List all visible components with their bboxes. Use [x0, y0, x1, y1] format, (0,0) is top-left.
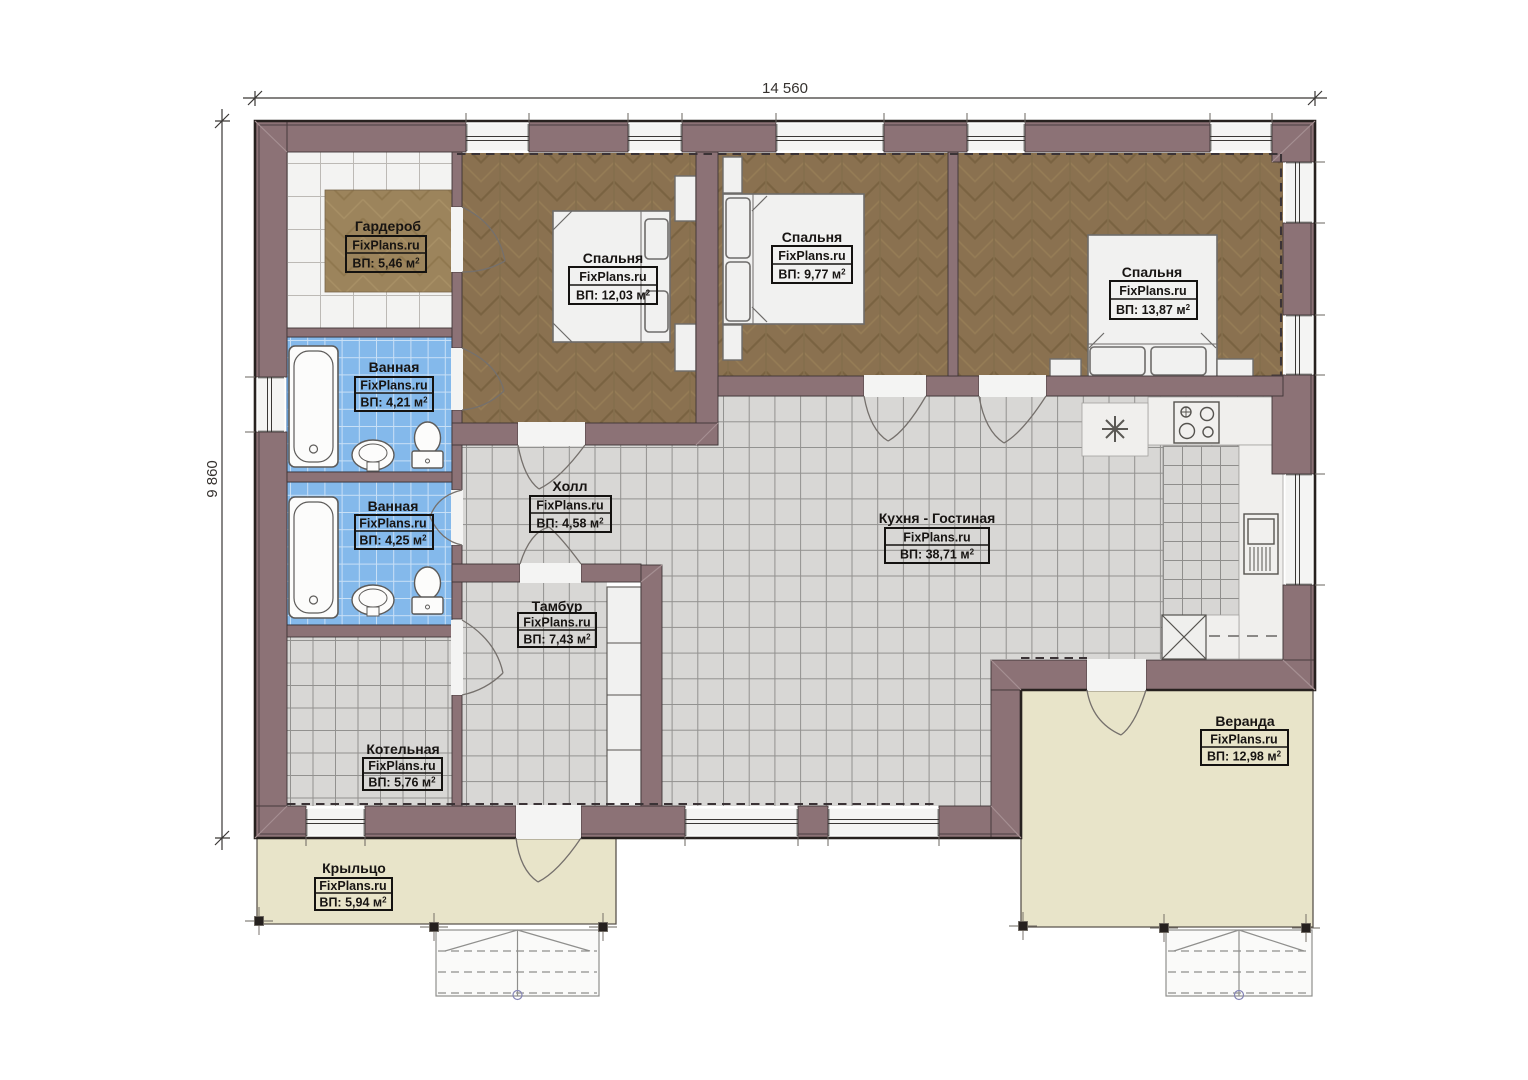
svg-text:FixPlans.ru: FixPlans.ru: [319, 879, 386, 893]
svg-text:Котельная: Котельная: [366, 741, 439, 757]
svg-text:FixPlans.ru: FixPlans.ru: [352, 239, 419, 253]
svg-text:Тамбур: Тамбур: [532, 598, 583, 614]
svg-text:Ванная: Ванная: [368, 498, 419, 514]
svg-text:9 860: 9 860: [204, 460, 221, 498]
svg-text:14 560: 14 560: [762, 80, 808, 97]
svg-text:FixPlans.ru: FixPlans.ru: [368, 759, 435, 773]
svg-text:Холл: Холл: [552, 478, 587, 494]
svg-text:ВП: 5,46 м2: ВП: 5,46 м2: [352, 257, 420, 271]
svg-text:Спальня: Спальня: [1122, 264, 1182, 280]
svg-text:ВП: 4,25 м2: ВП: 4,25 м2: [359, 534, 427, 548]
svg-text:Кухня - Гостиная: Кухня - Гостиная: [879, 510, 996, 526]
svg-text:ВП: 5,76 м2: ВП: 5,76 м2: [368, 776, 436, 790]
svg-text:ВП: 12,98 м2: ВП: 12,98 м2: [1207, 750, 1282, 764]
svg-text:ВП: 4,21 м2: ВП: 4,21 м2: [360, 396, 428, 410]
svg-text:FixPlans.ru: FixPlans.ru: [1210, 733, 1277, 747]
svg-text:Гардероб: Гардероб: [355, 218, 422, 234]
svg-text:FixPlans.ru: FixPlans.ru: [536, 499, 603, 513]
svg-text:Спальня: Спальня: [583, 250, 643, 266]
svg-text:ВП: 38,71 м2: ВП: 38,71 м2: [900, 548, 975, 562]
svg-text:FixPlans.ru: FixPlans.ru: [360, 379, 427, 393]
svg-text:ВП: 13,87 м2: ВП: 13,87 м2: [1116, 303, 1191, 317]
svg-text:FixPlans.ru: FixPlans.ru: [778, 249, 845, 263]
svg-text:ВП: 4,58 м2: ВП: 4,58 м2: [536, 517, 604, 531]
svg-text:FixPlans.ru: FixPlans.ru: [1119, 284, 1186, 298]
svg-text:Спальня: Спальня: [782, 229, 842, 245]
svg-text:Веранда: Веранда: [1215, 713, 1275, 729]
svg-text:ВП: 5,94 м2: ВП: 5,94 м2: [319, 896, 387, 910]
svg-text:FixPlans.ru: FixPlans.ru: [903, 531, 970, 545]
svg-text:FixPlans.ru: FixPlans.ru: [523, 616, 590, 630]
svg-text:Ванная: Ванная: [369, 359, 420, 375]
svg-text:FixPlans.ru: FixPlans.ru: [359, 517, 426, 531]
svg-text:ВП: 9,77 м2: ВП: 9,77 м2: [778, 268, 846, 282]
svg-text:FixPlans.ru: FixPlans.ru: [579, 270, 646, 284]
svg-text:ВП: 12,03 м2: ВП: 12,03 м2: [576, 289, 651, 303]
svg-text:Крыльцо: Крыльцо: [322, 860, 386, 876]
svg-text:ВП: 7,43 м2: ВП: 7,43 м2: [523, 633, 591, 647]
